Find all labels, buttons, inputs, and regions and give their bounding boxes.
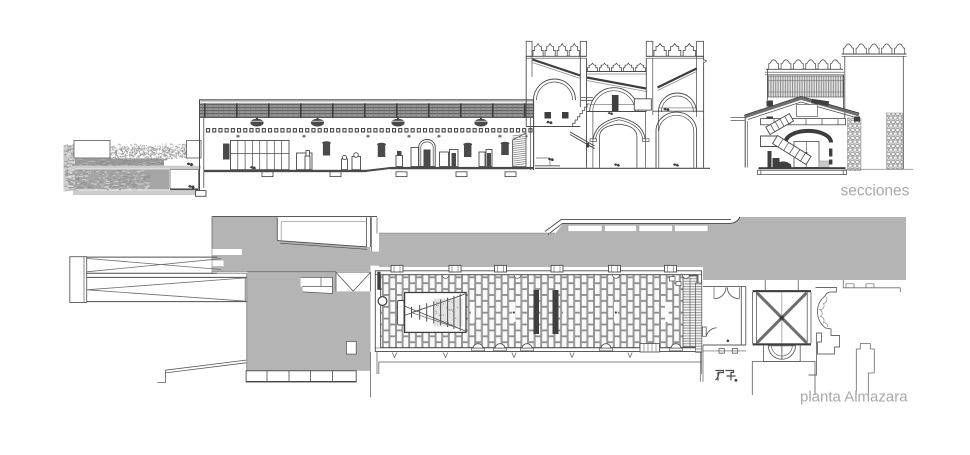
- svg-text:planta Almazara: planta Almazara: [800, 389, 908, 406]
- svg-text:secciones: secciones: [841, 183, 910, 200]
